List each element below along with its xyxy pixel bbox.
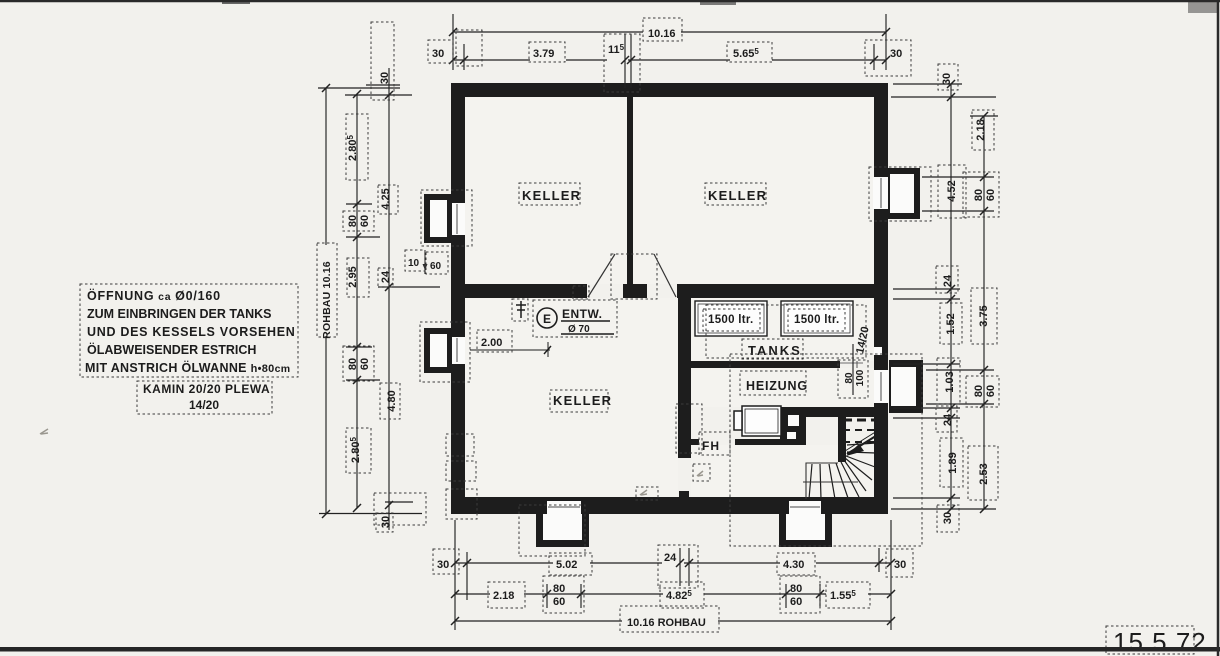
svg-text:4.30: 4.30 [783, 559, 804, 571]
svg-text:80: 80 [347, 358, 359, 370]
svg-text:1500 ltr.: 1500 ltr. [794, 314, 840, 326]
svg-text:80: 80 [553, 583, 565, 595]
svg-text:MIT ANSTRICH ÖLWANNE h•80cm: MIT ANSTRICH ÖLWANNE h•80cm [85, 360, 290, 375]
svg-text:4.52: 4.52 [946, 180, 958, 201]
svg-text:2.18: 2.18 [975, 119, 987, 140]
svg-text:24: 24 [942, 274, 954, 287]
svg-text:ZUM EINBRINGEN DER TANKS: ZUM EINBRINGEN DER TANKS [87, 307, 272, 321]
svg-text:3.75: 3.75 [978, 305, 990, 326]
svg-text:15.5.72: 15.5.72 [1113, 627, 1207, 656]
svg-text:14/20: 14/20 [189, 398, 219, 412]
svg-text:60: 60 [359, 358, 371, 370]
svg-text:2.95: 2.95 [347, 266, 359, 287]
svg-text:UND DES KESSELS VORSEHEN: UND DES KESSELS VORSEHEN [87, 325, 296, 339]
svg-text:KAMIN 20/20 PLEWA: KAMIN 20/20 PLEWA [143, 382, 270, 396]
svg-text:2.00: 2.00 [481, 337, 502, 349]
svg-text:100: 100 [855, 369, 866, 386]
svg-text:80: 80 [973, 189, 985, 201]
svg-text:60: 60 [985, 385, 997, 397]
svg-text:30: 30 [437, 559, 449, 571]
svg-text:KELLER: KELLER [553, 393, 612, 408]
svg-text:80: 80 [973, 385, 985, 397]
svg-text:1.52: 1.52 [945, 313, 957, 334]
svg-text:60: 60 [790, 596, 802, 608]
svg-text:30: 30 [380, 516, 392, 528]
svg-text:1.03: 1.03 [944, 371, 956, 392]
svg-text:24: 24 [380, 270, 392, 283]
svg-text:2.18: 2.18 [493, 590, 514, 602]
svg-text:1500 ltr.: 1500 ltr. [708, 314, 754, 326]
svg-text:10: 10 [408, 258, 420, 269]
svg-text:10.16: 10.16 [648, 28, 676, 40]
svg-text:30: 30 [890, 48, 902, 60]
svg-text:4.25: 4.25 [380, 188, 392, 209]
svg-text:80: 80 [790, 583, 802, 595]
svg-text:80: 80 [347, 215, 359, 227]
svg-text:ENTW.: ENTW. [562, 307, 603, 321]
svg-text:30: 30 [894, 559, 906, 571]
svg-text:3.79: 3.79 [533, 48, 554, 60]
svg-text:HEIZUNG: HEIZUNG [746, 379, 808, 393]
svg-text:ÖLABWEISENDER ESTRICH: ÖLABWEISENDER ESTRICH [87, 342, 256, 357]
svg-text:ROHBAU 10.16: ROHBAU 10.16 [321, 261, 333, 339]
svg-text:5.02: 5.02 [556, 559, 577, 571]
svg-text:10.16 ROHBAU: 10.16 ROHBAU [627, 617, 706, 629]
svg-text:ÖFFNUNG ca Ø0/160: ÖFFNUNG ca Ø0/160 [87, 288, 221, 303]
svg-text:24: 24 [664, 552, 677, 564]
svg-text:TANKS: TANKS [748, 343, 802, 358]
svg-text:60: 60 [985, 189, 997, 201]
svg-text:60: 60 [359, 215, 371, 227]
svg-text:30: 30 [432, 48, 444, 60]
svg-text:KELLER: KELLER [708, 188, 767, 203]
svg-text:E: E [543, 312, 551, 326]
svg-text:KELLER: KELLER [522, 188, 581, 203]
svg-text:FH: FH [702, 439, 720, 453]
svg-text:4.80: 4.80 [386, 390, 398, 411]
svg-text:60: 60 [553, 596, 565, 608]
svg-text:2.53: 2.53 [978, 463, 990, 484]
svg-text:30: 30 [942, 512, 954, 524]
svg-text:1.89: 1.89 [947, 452, 959, 473]
svg-text:24: 24 [942, 413, 954, 426]
svg-text:60: 60 [430, 261, 442, 272]
